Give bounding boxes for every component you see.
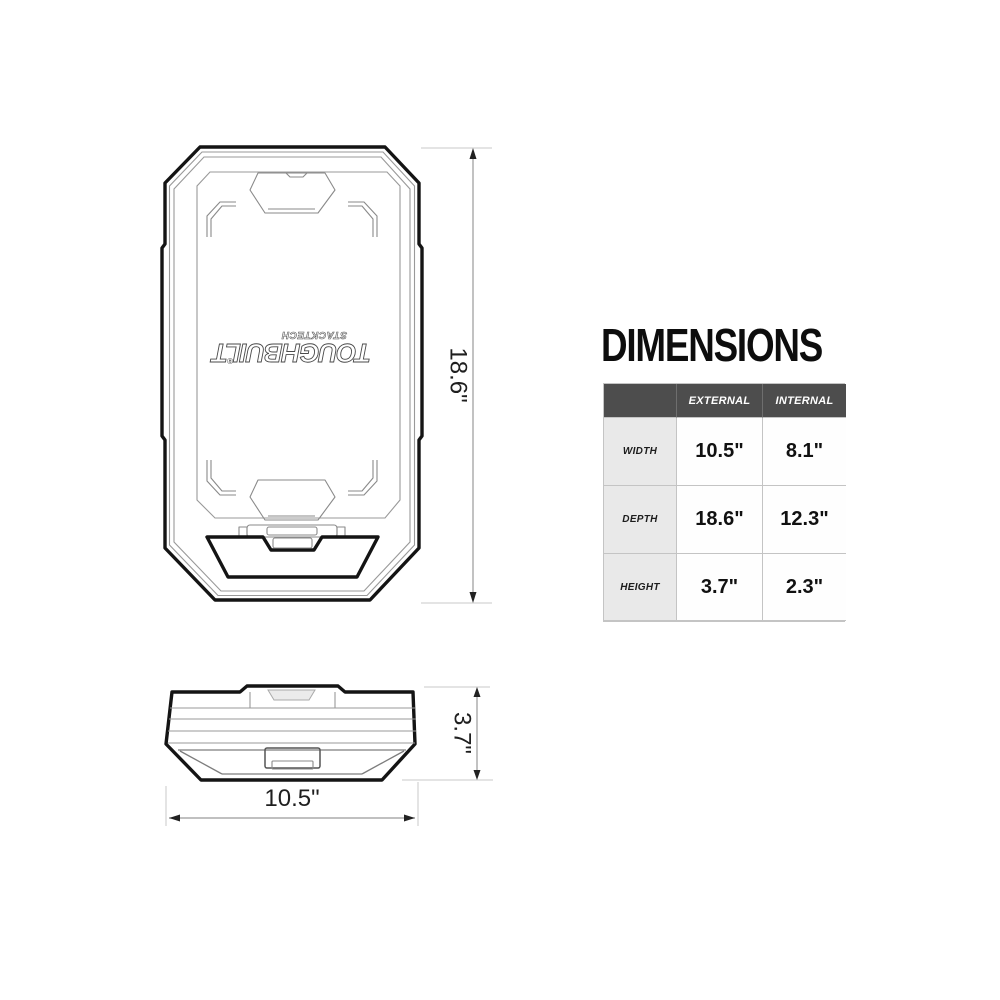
body-seam-lines xyxy=(168,708,416,743)
width-dimension-label: 10.5" xyxy=(264,785,319,812)
width-internal-value: 8.1" xyxy=(763,418,846,486)
bottom-hexagon xyxy=(250,480,335,520)
handle-bump-inset xyxy=(268,690,315,700)
width-dimension: 10.5" xyxy=(166,782,418,826)
latch-recess-outline xyxy=(207,537,378,577)
height-dimension-label: 3.7" xyxy=(449,712,476,754)
depth-internal-value: 12.3" xyxy=(763,486,846,554)
latch-band xyxy=(239,525,345,537)
base-inner-outline xyxy=(178,750,406,774)
depth-dimension: 18.6" xyxy=(421,148,492,603)
top-view-outer-outline xyxy=(162,147,422,600)
depth-dimension-label: 18.6" xyxy=(445,347,472,402)
top-view-drawing: TOUGHBUILT ® STACKTECH 18.6" xyxy=(140,140,500,620)
top-view-inner-outline-1 xyxy=(170,152,415,596)
width-external-value: 10.5" xyxy=(677,418,763,486)
table-corner-cell xyxy=(604,384,677,418)
product-dimensions-page: TOUGHBUILT ® STACKTECH 18.6" xyxy=(0,0,1000,1000)
top-view-inner-outline-2 xyxy=(174,157,410,591)
height-external-value: 3.7" xyxy=(677,554,763,621)
depth-external-value: 18.6" xyxy=(677,486,763,554)
logo-registered-mark: ® xyxy=(227,356,233,365)
side-view-drawing: 3.7" 10.5" xyxy=(140,660,520,840)
lid-logo: TOUGHBUILT ® STACKTECH xyxy=(210,329,371,368)
dimensions-table: EXTERNAL INTERNAL WIDTH 10.5" 8.1" DEPTH… xyxy=(603,383,845,622)
logo-brand-text: TOUGHBUILT xyxy=(210,338,371,368)
latch-clip xyxy=(273,538,312,548)
column-header-internal: INTERNAL xyxy=(763,384,846,418)
logo-series-text: STACKTECH xyxy=(281,329,347,340)
row-label-width: WIDTH xyxy=(604,418,677,486)
top-handle-notch xyxy=(286,173,307,177)
side-latch xyxy=(265,748,320,769)
page-title: DIMENSIONS xyxy=(601,318,822,368)
row-label-depth: DEPTH xyxy=(604,486,677,554)
row-label-height: HEIGHT xyxy=(604,554,677,621)
column-header-external: EXTERNAL xyxy=(677,384,763,418)
height-internal-value: 2.3" xyxy=(763,554,846,621)
top-handle-hexagon xyxy=(250,173,335,213)
